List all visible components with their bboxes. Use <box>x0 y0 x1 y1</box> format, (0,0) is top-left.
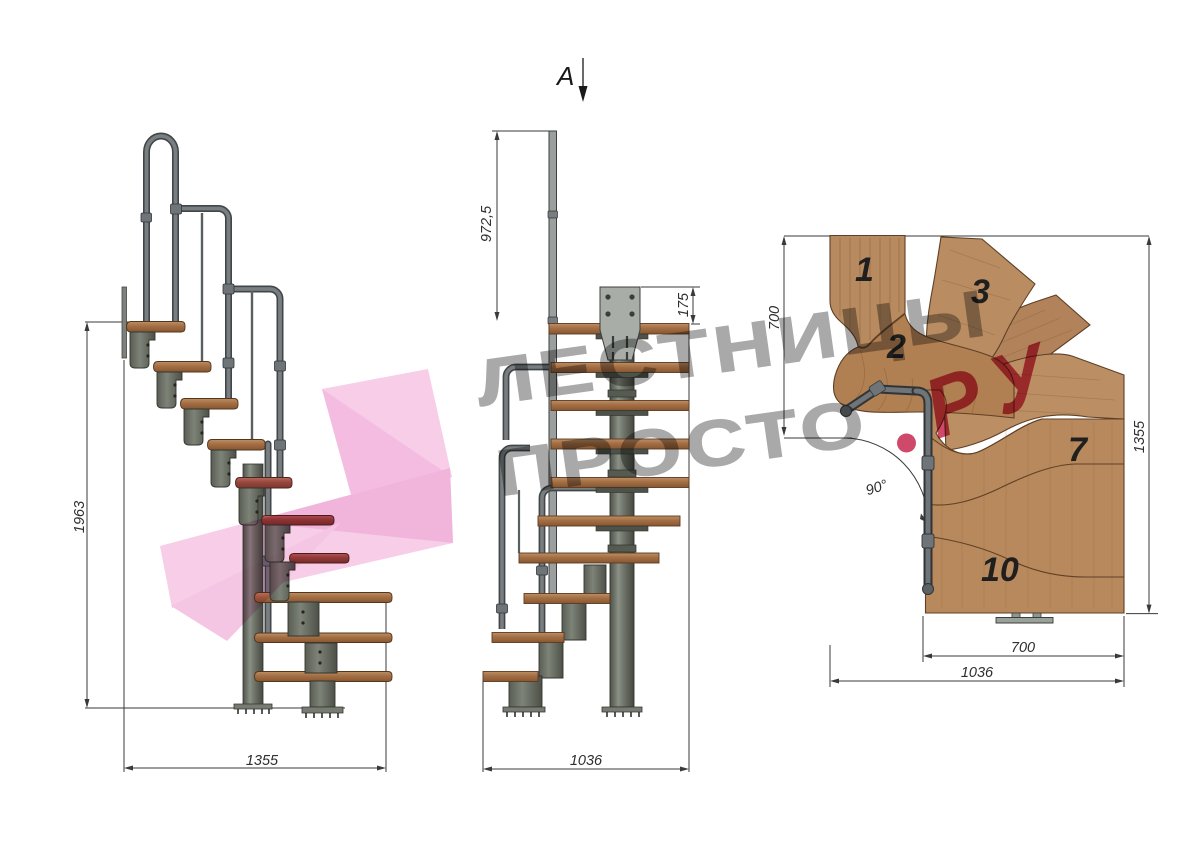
svg-text:A: A <box>555 61 574 91</box>
svg-text:1036: 1036 <box>961 665 994 681</box>
svg-text:1963: 1963 <box>72 501 88 533</box>
svg-text:175: 175 <box>676 292 692 317</box>
svg-text:972,5: 972,5 <box>479 205 495 242</box>
svg-text:700: 700 <box>1011 640 1035 656</box>
svg-text:10: 10 <box>981 551 1019 589</box>
svg-text:1: 1 <box>855 251 874 289</box>
svg-text:1036: 1036 <box>570 753 603 769</box>
svg-text:1355: 1355 <box>246 753 279 769</box>
svg-text:7: 7 <box>1068 431 1089 469</box>
svg-text:1355: 1355 <box>1132 420 1148 453</box>
